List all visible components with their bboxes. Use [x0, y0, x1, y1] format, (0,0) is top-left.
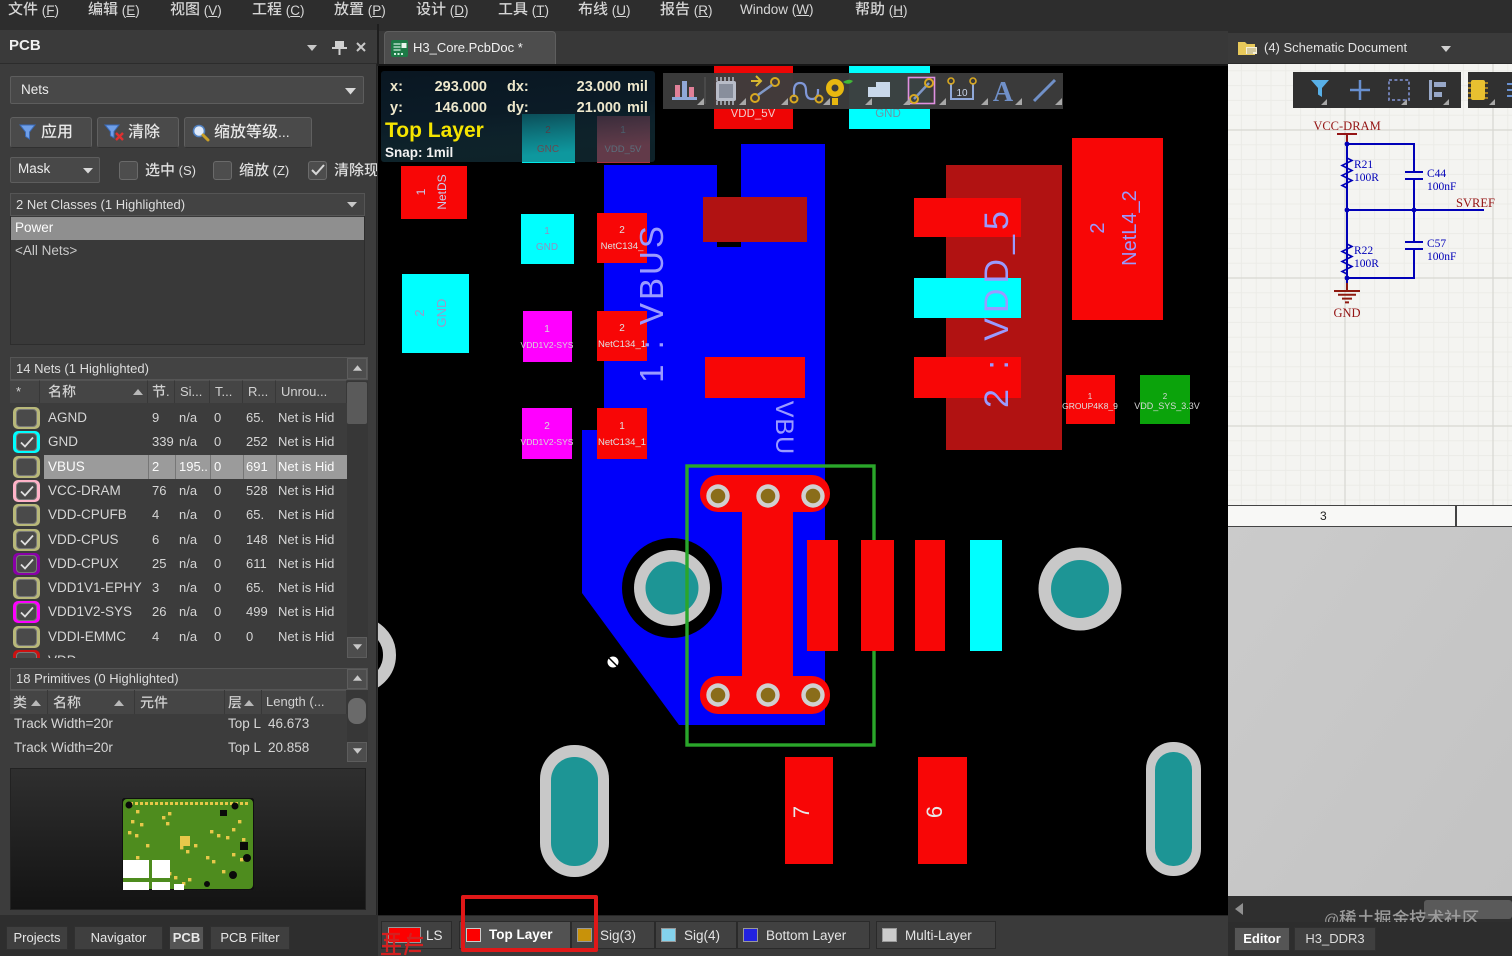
svg-text:Snap: 1mil: Snap: 1mil: [385, 145, 453, 160]
svg-text:2: 2: [1163, 392, 1168, 401]
svg-text:100R: 100R: [1354, 258, 1379, 270]
svg-text:SVREF: SVREF: [1456, 196, 1495, 210]
svg-text:21.000: 21.000: [577, 100, 621, 116]
svg-text:100nF: 100nF: [1427, 251, 1456, 263]
svg-text:23.000: 23.000: [577, 79, 621, 95]
svg-text:1: 1: [544, 226, 550, 237]
svg-text:1: 1: [619, 421, 625, 432]
svg-text:293.000: 293.000: [435, 79, 487, 95]
svg-text:C44: C44: [1427, 168, 1446, 180]
svg-text:A: A: [993, 77, 1014, 108]
svg-text:GND: GND: [434, 299, 449, 328]
svg-text:1: 1: [1088, 392, 1093, 401]
svg-text:GROUP4K8_9: GROUP4K8_9: [1062, 401, 1118, 411]
svg-text:mil: mil: [627, 79, 648, 95]
svg-text:R22: R22: [1354, 245, 1373, 257]
svg-text:2: 2: [412, 309, 427, 316]
svg-text:2: 2: [619, 323, 625, 334]
svg-text:C57: C57: [1427, 238, 1446, 250]
svg-text:R21: R21: [1354, 159, 1373, 171]
svg-text:dy:: dy:: [507, 100, 529, 116]
svg-text:6: 6: [922, 806, 947, 818]
svg-text:mil: mil: [627, 100, 648, 116]
svg-text:NetDS: NetDS: [435, 174, 449, 209]
svg-text:VDD1V2-SYS: VDD1V2-SYS: [521, 340, 574, 350]
svg-text:NetC134_1: NetC134_1: [598, 437, 646, 448]
svg-text:GND: GND: [536, 242, 558, 253]
svg-text:1: 1: [414, 188, 428, 195]
svg-text:dx:: dx:: [507, 79, 529, 95]
svg-text:VDD_5V: VDD_5V: [731, 108, 776, 120]
svg-text:1 : VBUS: 1 : VBUS: [633, 223, 670, 383]
svg-text:VBU: VBU: [770, 393, 798, 455]
svg-text:1: 1: [544, 324, 550, 335]
svg-text:y:: y:: [390, 100, 403, 116]
svg-text:GND: GND: [875, 108, 901, 120]
svg-text:VDD_SYS_3.3V: VDD_SYS_3.3V: [1134, 401, 1200, 411]
svg-text:2: 2: [619, 225, 625, 236]
svg-text:2: 2: [1087, 222, 1109, 233]
svg-text:VCC-DRAM: VCC-DRAM: [1313, 119, 1380, 133]
svg-text:GND: GND: [1333, 306, 1360, 320]
svg-text:NetL4_2: NetL4_2: [1119, 190, 1141, 266]
svg-text:100R: 100R: [1354, 172, 1379, 184]
svg-text:146.000: 146.000: [435, 100, 487, 116]
svg-text:7: 7: [789, 806, 814, 818]
svg-text:x:: x:: [390, 79, 403, 95]
svg-text:VDD1V2-SYS: VDD1V2-SYS: [521, 437, 574, 447]
svg-text:2: 2: [544, 421, 550, 432]
svg-text:10: 10: [956, 88, 968, 99]
svg-text:100nF: 100nF: [1427, 181, 1456, 193]
svg-text:Top Layer: Top Layer: [385, 119, 484, 142]
svg-text:2 : VDD_5: 2 : VDD_5: [978, 206, 1016, 408]
